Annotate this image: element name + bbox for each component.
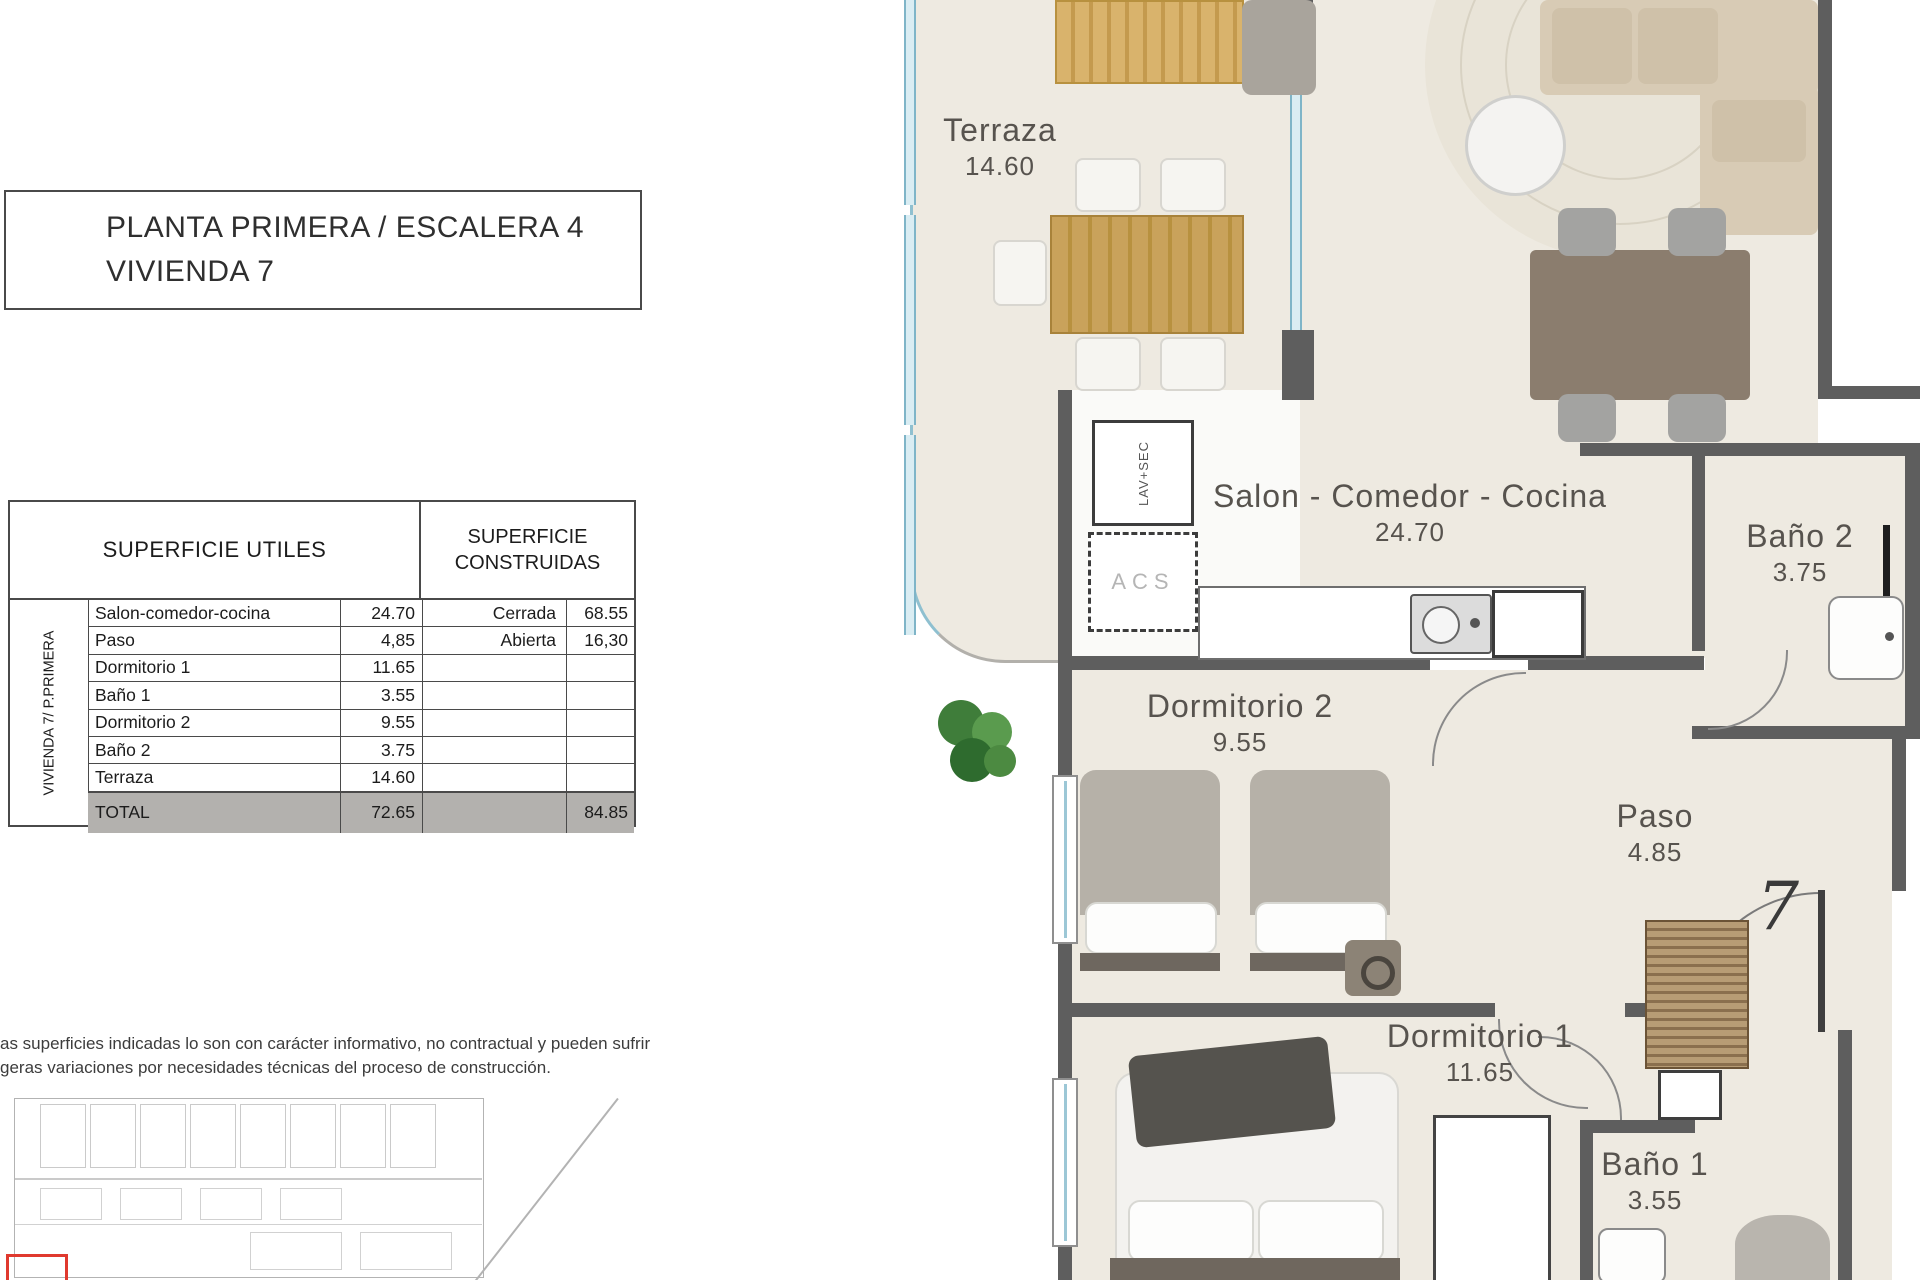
title-line-2: VIVIENDA 7 — [106, 250, 274, 294]
site-plan-unit — [90, 1104, 136, 1168]
wardrobe — [1645, 920, 1749, 1069]
site-plan-unit — [190, 1104, 236, 1168]
bed-pillow — [1128, 1200, 1254, 1262]
table-row: Baño 2 3.75 — [88, 736, 634, 763]
toilet — [1735, 1215, 1830, 1280]
site-plan-unit — [390, 1104, 436, 1168]
room-label-dormitorio2: Dormitorio 2 9.55 — [1120, 688, 1360, 758]
bed-headboard — [1080, 953, 1220, 971]
table-side-label: VIVIENDA 7/ P.PRIMERA — [10, 600, 88, 825]
room-label-paso: Paso 4.85 — [1565, 798, 1745, 868]
wall-bano2-top — [1580, 443, 1920, 456]
acs-closet-label: ACS — [1111, 569, 1174, 595]
site-plan-unit — [240, 1104, 286, 1168]
sofa-cushion — [1552, 8, 1632, 84]
site-plan-unit — [360, 1232, 452, 1270]
surface-table-header: SUPERFICIE UTILES SUPERFICIE CONSTRUIDAS — [10, 502, 634, 600]
header-construidas-line1: SUPERFICIE — [467, 524, 587, 550]
site-plan-unit — [120, 1188, 182, 1220]
header-superficie-construidas: SUPERFICIE CONSTRUIDAS — [419, 502, 634, 598]
acs-closet: ACS — [1088, 532, 1198, 632]
terrace-dining-table — [1050, 215, 1244, 334]
nightstand-knob-icon — [1361, 956, 1395, 990]
window — [1052, 1078, 1078, 1247]
dining-chair — [1558, 208, 1616, 256]
site-plan-line — [14, 1178, 482, 1180]
washbasin — [1828, 596, 1904, 680]
site-plan-unit — [250, 1232, 342, 1270]
header-construidas-line2: CONSTRUIDAS — [455, 550, 601, 576]
terrace-lounge-chair — [1242, 0, 1316, 95]
entrance-door-leaf — [1818, 890, 1825, 1032]
site-plan-slanted-edge — [463, 1098, 618, 1280]
dining-chair — [1668, 208, 1726, 256]
kitchen-appliance — [1492, 590, 1584, 658]
title-line-1: PLANTA PRIMERA / ESCALERA 4 — [106, 206, 584, 250]
wall-right-outer — [1818, 0, 1832, 395]
wall-entry — [1892, 726, 1906, 891]
room-label-terraza: Terraza 14.60 — [900, 112, 1100, 182]
table-row: Paso 4,85 Abierta 16,30 — [88, 626, 634, 653]
site-plan-unit — [290, 1104, 336, 1168]
floor-plan: LAV+SEC ACS — [880, 0, 1920, 1280]
site-plan-unit — [140, 1104, 186, 1168]
disclaimer-text: as superficies indicadas lo son con cará… — [0, 1032, 660, 1080]
terrace-chair — [1160, 337, 1226, 391]
window — [1052, 775, 1078, 944]
terrace-chair — [993, 240, 1047, 306]
site-plan-unit — [340, 1104, 386, 1168]
faucet-icon — [1885, 632, 1894, 641]
site-overview-plan — [0, 1092, 650, 1280]
site-plan-unit — [200, 1188, 262, 1220]
table-row: Salon-comedor-cocina 24.70 Cerrada 68.55 — [88, 600, 634, 626]
room-label-dormitorio1: Dormitorio 1 11.65 — [1360, 1018, 1600, 1088]
faucet-icon — [1470, 618, 1480, 628]
wall — [1282, 330, 1314, 400]
table-total-row: TOTAL 72.65 84.85 — [88, 791, 634, 833]
bed-pillow — [1258, 1200, 1384, 1262]
title-block: PLANTA PRIMERA / ESCALERA 4 VIVIENDA 7 — [4, 190, 642, 310]
table-row: Dormitorio 2 9.55 — [88, 709, 634, 736]
terrace-bench — [1055, 0, 1244, 84]
surface-table: SUPERFICIE UTILES SUPERFICIE CONSTRUIDAS… — [8, 500, 636, 827]
table-row: Terraza 14.60 — [88, 763, 634, 790]
shower-enclosure — [1433, 1115, 1551, 1280]
header-superficie-utiles: SUPERFICIE UTILES — [10, 502, 419, 598]
shaft-box — [1658, 1070, 1722, 1120]
wall-right-outer — [1838, 1030, 1852, 1280]
terrace-chair — [1075, 337, 1141, 391]
dining-chair — [1668, 394, 1726, 442]
table-row: Dormitorio 1 11.65 — [88, 654, 634, 681]
sink-basin-icon — [1422, 606, 1460, 644]
terrace-chair — [1160, 158, 1226, 212]
dining-chair — [1558, 394, 1616, 442]
room-label-salon: Salon - Comedor - Cocina 24.70 — [1210, 478, 1610, 548]
laundry-closet-label: LAV+SEC — [1136, 441, 1151, 506]
wall-bano1-top — [1580, 1120, 1695, 1133]
glass-partition — [1290, 55, 1302, 335]
table-row: Baño 1 3.55 — [88, 681, 634, 708]
surface-table-body: Salon-comedor-cocina 24.70 Cerrada 68.55… — [88, 600, 634, 833]
site-plan-unit — [40, 1188, 102, 1220]
coffee-table — [1465, 95, 1566, 196]
wall — [1818, 386, 1920, 399]
bed-headboard — [1110, 1258, 1400, 1280]
site-plan-line — [14, 1224, 482, 1225]
washbasin — [1598, 1228, 1666, 1280]
glass-railing — [904, 215, 916, 425]
nightstand — [1345, 940, 1401, 996]
disclaimer-line-2: geras variaciones por necesidades técnic… — [0, 1056, 660, 1080]
site-plan-unit — [280, 1188, 342, 1220]
single-bed-duvet — [1080, 770, 1220, 915]
laundry-closet: LAV+SEC — [1092, 420, 1194, 526]
wall-dorm-divider — [1065, 1003, 1495, 1017]
wall-bano2-left — [1692, 456, 1705, 651]
sofa-cushion — [1712, 100, 1806, 162]
site-plan-unit — [40, 1104, 86, 1168]
site-plan-highlight-unit — [6, 1254, 68, 1280]
room-label-bano2: Baño 2 3.75 — [1715, 518, 1885, 588]
glass-railing — [904, 435, 916, 635]
wall-right-outer — [1905, 443, 1920, 739]
disclaimer-line-1: as superficies indicadas lo son con cará… — [0, 1032, 660, 1056]
sofa-cushion — [1638, 8, 1718, 84]
room-label-bano1: Baño 1 3.55 — [1565, 1146, 1745, 1216]
kitchen-sink — [1410, 594, 1492, 654]
single-bed-duvet — [1250, 770, 1390, 915]
unit-number: 7 — [1738, 868, 1818, 968]
dining-table — [1530, 250, 1750, 400]
bed-pillow — [1085, 902, 1217, 954]
